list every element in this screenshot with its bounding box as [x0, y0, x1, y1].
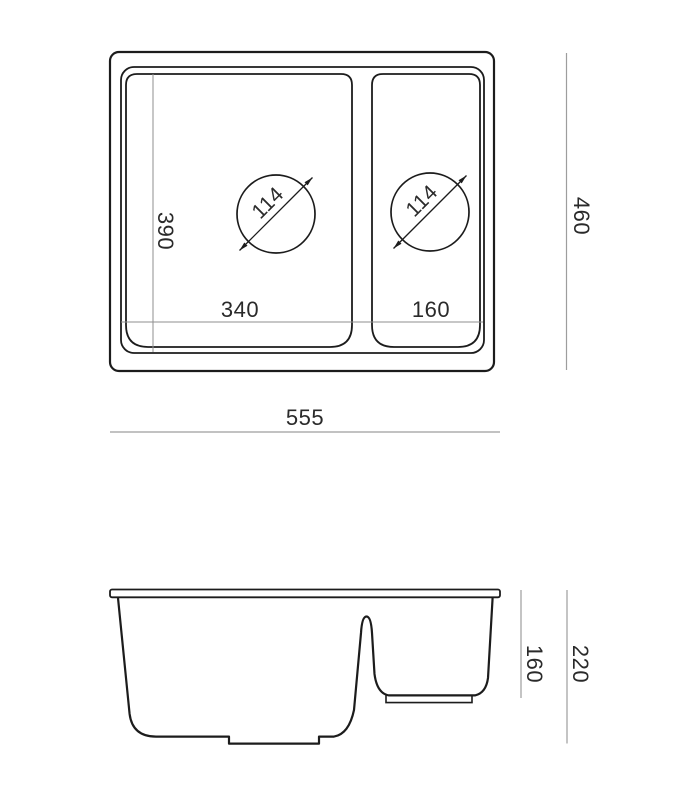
dim-label-second-bowl-height: 160	[523, 645, 545, 683]
technical-drawing-canvas: 555 460 390 340 160 114 114 160 220	[0, 0, 683, 800]
dim-label-main-bowl-width: 340	[221, 299, 259, 321]
dim-label-main-bowl-depth: 390	[154, 212, 176, 250]
dim-label-overall-depth: 460	[570, 197, 592, 235]
dim-label-overall-height: 220	[569, 645, 591, 683]
dim-label-overall-width: 555	[286, 407, 324, 429]
dim-label-second-bowl-width: 160	[412, 299, 450, 321]
dimension-lines	[110, 53, 567, 744]
front-view-body-outline	[118, 598, 493, 744]
front-view	[110, 590, 500, 744]
front-view-rim-bar	[110, 590, 500, 598]
